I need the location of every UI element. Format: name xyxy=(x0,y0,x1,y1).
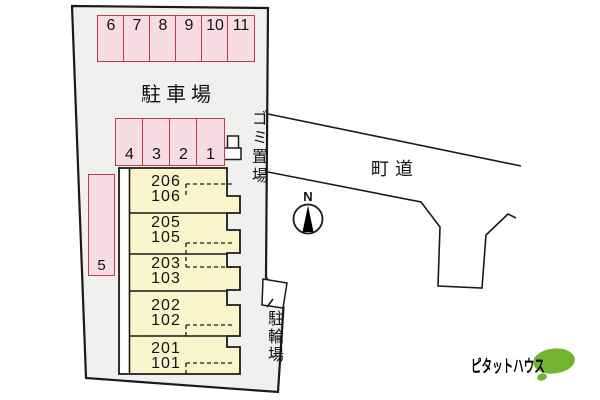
parking-space-number: 2 xyxy=(179,146,188,164)
parking-space-4: 4 xyxy=(115,118,144,166)
unit-label-205-105: 205 105 xyxy=(131,215,201,245)
unit-number-lower: 105 xyxy=(131,230,201,245)
parking-space-number: 1 xyxy=(206,146,215,164)
garbage-station-box-lower xyxy=(224,148,241,160)
compass-n-label: N xyxy=(296,189,320,204)
bicycle-parking-box xyxy=(262,279,287,308)
unit-number-upper: 201 xyxy=(131,341,201,356)
parking-space-number: 6 xyxy=(107,17,116,35)
unit-number-upper: 202 xyxy=(131,298,201,313)
unit-number-lower: 106 xyxy=(131,189,201,204)
parking-space-number: 7 xyxy=(133,17,142,35)
unit-number-lower: 103 xyxy=(131,271,201,286)
parking-space-number: 5 xyxy=(97,257,105,274)
unit-number-upper: 205 xyxy=(131,215,201,230)
parking-space-number: 10 xyxy=(206,17,224,35)
unit-label-201-101: 201 101 xyxy=(131,341,201,371)
logo-text: ピタットハウス xyxy=(471,352,545,377)
road-label: 町道 xyxy=(371,155,419,181)
parking-lot-label: 駐車場 xyxy=(141,78,216,107)
parking-space-7: 7 xyxy=(123,15,151,62)
parking-space-8: 8 xyxy=(149,15,177,62)
unit-number-lower: 101 xyxy=(131,356,201,371)
parking-space-number: 3 xyxy=(152,146,161,164)
unit-label-203-103: 203 103 xyxy=(131,256,201,286)
parking-space-number: 9 xyxy=(185,17,194,35)
parking-space-9: 9 xyxy=(175,15,203,62)
parking-space-11: 11 xyxy=(227,15,255,62)
unit-label-206-106: 206 106 xyxy=(131,174,201,204)
unit-number-upper: 203 xyxy=(131,256,201,271)
parking-space-2: 2 xyxy=(169,118,198,166)
parking-space-number: 11 xyxy=(233,17,250,35)
parking-space-number: 4 xyxy=(125,146,134,164)
building-corridor xyxy=(121,169,130,373)
unit-number-upper: 206 xyxy=(131,174,201,189)
bicycle-parking-label: 駐輪場 xyxy=(261,310,285,364)
parking-space-number: 8 xyxy=(159,17,168,35)
parking-space-5: 5 xyxy=(88,174,115,276)
parking-space-1: 1 xyxy=(196,118,225,166)
parking-space-10: 10 xyxy=(201,15,229,62)
parking-space-6: 6 xyxy=(97,15,125,62)
unit-number-lower: 102 xyxy=(131,313,201,328)
unit-label-202-102: 202 102 xyxy=(131,298,201,328)
site-plan-canvas: 6 7 8 9 10 11 4 3 2 1 5 206 106 205 105 … xyxy=(0,0,600,400)
garbage-station-box-upper xyxy=(228,136,239,149)
parking-space-3: 3 xyxy=(142,118,171,166)
garbage-area-label: ゴミ置場 xyxy=(245,110,269,186)
